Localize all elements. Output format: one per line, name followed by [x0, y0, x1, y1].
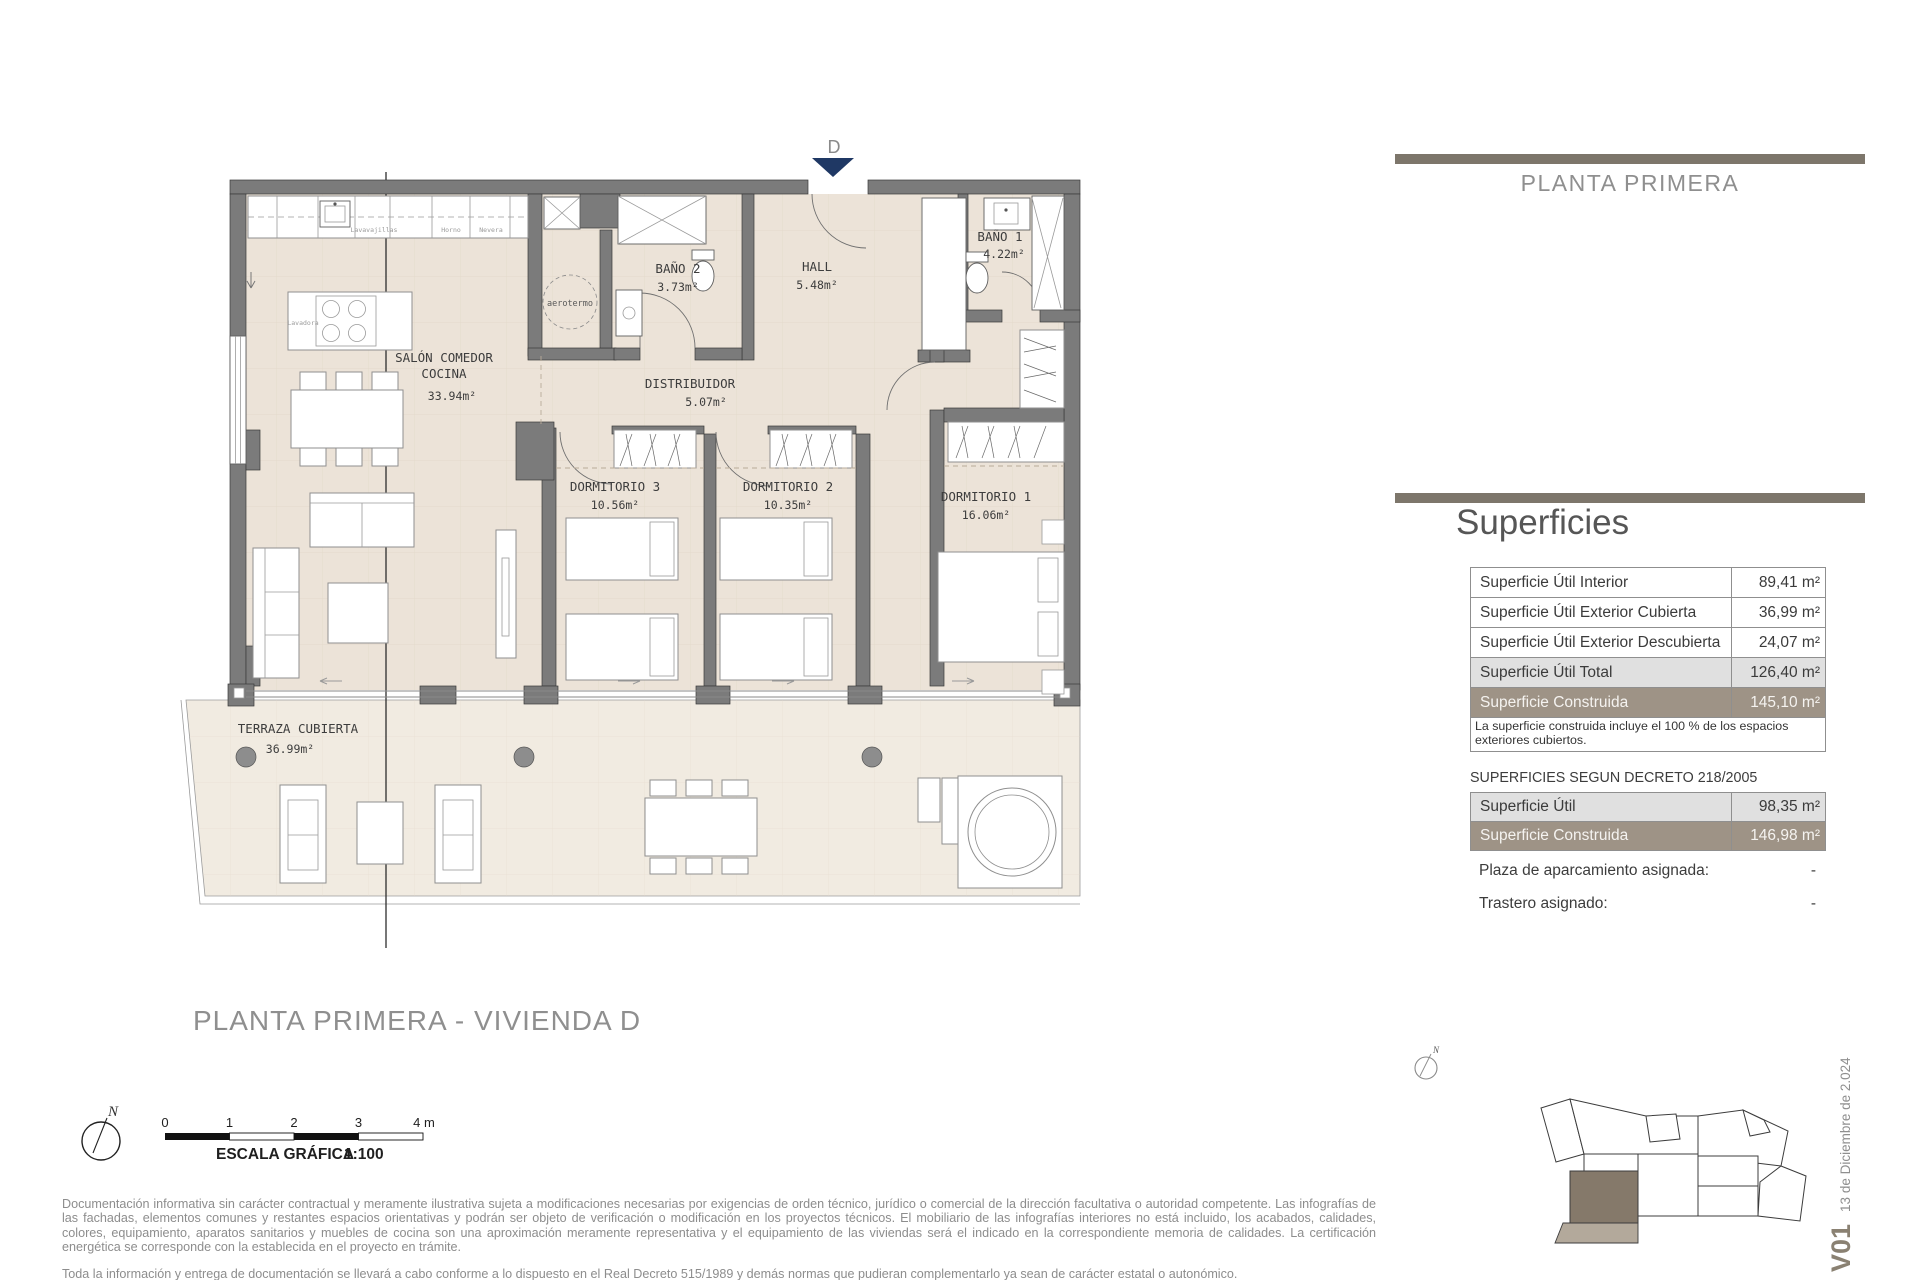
dishwasher-label: Lavavajillas [351, 226, 398, 234]
svg-text:10.35m²: 10.35m² [764, 498, 812, 512]
aerotermo-label: aerotermo [547, 299, 593, 309]
svg-text:N: N [1432, 1045, 1440, 1055]
svg-text:3: 3 [355, 1115, 362, 1130]
table-row-built: Superficie Construida 145,10 m² [1471, 688, 1825, 718]
superficies-title: Superficies [1456, 503, 1629, 543]
room-label: COCINA [421, 366, 467, 381]
column-icon [236, 747, 256, 767]
version-code: V01 [1826, 1224, 1857, 1272]
svg-text:4 m: 4 m [413, 1115, 435, 1130]
side-table [357, 802, 403, 864]
highlighted-unit [1570, 1171, 1638, 1223]
version-date: 13 de Diciembre de 2.024 [1838, 1057, 1853, 1212]
svg-text:10.56m²: 10.56m² [591, 498, 639, 512]
room-label: SALÓN COMEDOR [395, 350, 493, 365]
table-row-total: Superficie Útil Total 126,40 m² [1471, 658, 1825, 688]
parking-assignment: Plaza de aparcamiento asignada: - [1470, 862, 1824, 880]
washbasin-icon [616, 290, 642, 336]
accent-bar-top [1395, 154, 1865, 164]
drawing-title: PLANTA PRIMERA - VIVIENDA D [193, 1005, 641, 1037]
svg-text:TERRAZA CUBIERTA: TERRAZA CUBIERTA [238, 721, 359, 736]
svg-text:5.07m²: 5.07m² [685, 395, 727, 409]
svg-text:2: 2 [290, 1115, 297, 1130]
decreto-title: SUPERFICIES SEGUN DECRETO 218/2005 [1470, 770, 1757, 786]
graphic-scale: 0 1 2 3 4 m ESCALA GRÁFICA 1:100 [152, 1105, 452, 1170]
page: D Lavavajillas H [0, 0, 1920, 1280]
accent-bar-superficies [1395, 493, 1865, 503]
table-row: Superficie Útil Exterior Cubierta 36,99 … [1471, 598, 1825, 628]
table-row: Superficie Útil 98,35 m² [1471, 793, 1825, 822]
room-area: 33.94m² [428, 389, 476, 403]
svg-text:DORMITORIO 3: DORMITORIO 3 [570, 479, 660, 494]
table-note: La superficie construida incluye el 100 … [1471, 718, 1825, 751]
column-icon [862, 747, 882, 767]
scale-ratio: 1:100 [344, 1146, 384, 1163]
floor-plan: D Lavavajillas H [175, 105, 1085, 955]
svg-text:BAÑO 1: BAÑO 1 [977, 229, 1022, 244]
svg-text:0: 0 [161, 1115, 168, 1130]
svg-text:DISTRIBUIDOR: DISTRIBUIDOR [645, 376, 736, 391]
table-row-built: Superficie Construida 146,98 m² [1471, 822, 1825, 850]
svg-text:36.99m²: 36.99m² [266, 742, 314, 756]
table-row: Superficie Útil Interior 89,41 m² [1471, 568, 1825, 598]
disclaimer-paragraph: Documentación informativa sin carácter c… [62, 1197, 1376, 1255]
dining-table [291, 390, 403, 448]
tv-unit [496, 530, 516, 658]
svg-text:DORMITORIO 2: DORMITORIO 2 [743, 479, 833, 494]
coffee-table [328, 583, 388, 643]
entry-arrow-icon [812, 158, 854, 177]
highlighted-terrace [1555, 1223, 1638, 1243]
svg-text:1: 1 [226, 1115, 233, 1130]
terrace-table [645, 798, 757, 856]
storage-assignment: Trastero asignado: - [1470, 895, 1824, 913]
superficies-table: Superficie Útil Interior 89,41 m² Superf… [1470, 567, 1826, 752]
svg-text:DORMITORIO 1: DORMITORIO 1 [941, 489, 1031, 504]
svg-text:4.22m²: 4.22m² [983, 247, 1025, 261]
disclaimer-paragraph: Toda la información y entrega de documen… [62, 1267, 1376, 1280]
svg-text:3.73m²: 3.73m² [657, 280, 699, 294]
oven-label: Horno [441, 226, 461, 234]
site-key-plan: N [1398, 1036, 1858, 1274]
svg-text:5.48m²: 5.48m² [796, 278, 838, 292]
table-row: Superficie Útil Exterior Descubierta 24,… [1471, 628, 1825, 658]
svg-text:HALL: HALL [802, 259, 832, 274]
toilet-icon [966, 263, 988, 293]
svg-text:16.06m²: 16.06m² [962, 508, 1010, 522]
entry-marker: D [812, 137, 854, 177]
north-compass-small-icon: N [1415, 1045, 1440, 1079]
scale-label: ESCALA GRÁFICA [216, 1146, 354, 1163]
column-icon [514, 747, 534, 767]
svg-text:BAÑO 2: BAÑO 2 [655, 261, 700, 276]
duct [922, 198, 966, 350]
north-compass-icon: N [70, 1098, 140, 1168]
washer-label: Lavadora [287, 319, 318, 327]
version-stamp: V01 13 de Diciembre de 2.024 [1826, 1032, 1857, 1272]
panel-title: PLANTA PRIMERA [1395, 170, 1865, 197]
sofa [253, 548, 299, 678]
fridge-label: Nevera [479, 226, 503, 234]
decreto-table: Superficie Útil 98,35 m² Superficie Cons… [1470, 792, 1826, 851]
toilet-tank-icon [692, 250, 714, 260]
entry-label: D [828, 137, 841, 157]
north-label: N [107, 1104, 119, 1120]
